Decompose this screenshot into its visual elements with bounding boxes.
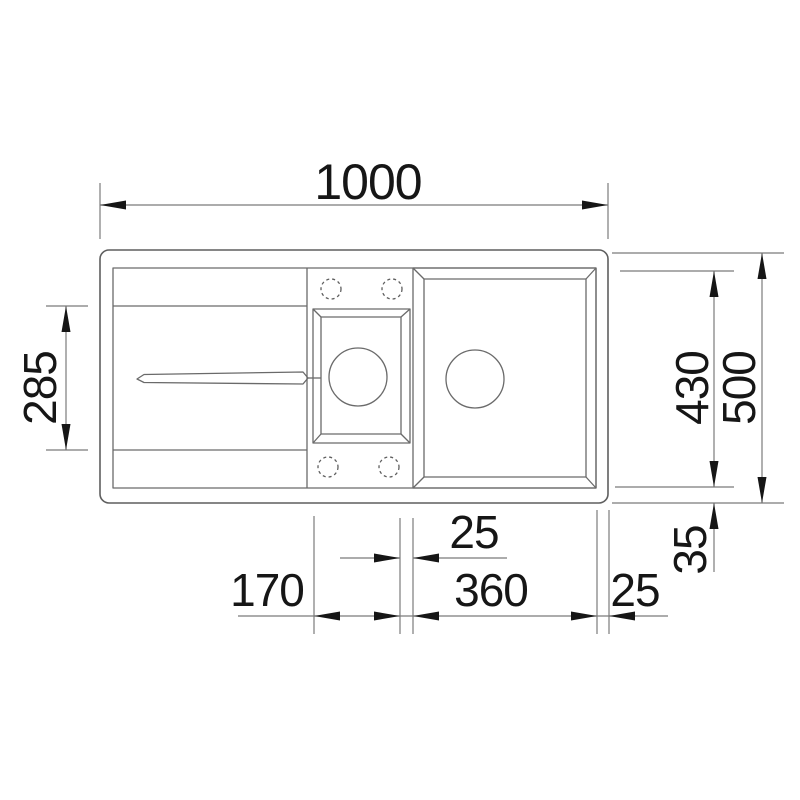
tap-hole-bottom-left <box>318 457 338 477</box>
arrowhead-down <box>758 477 767 503</box>
small-bowl-bevel-bl <box>313 434 321 443</box>
small-bowl-bevel-tr <box>401 309 410 317</box>
dim-label-main-bowl-width: 360 <box>454 564 528 616</box>
small-bowl-bevel-tl <box>313 309 321 317</box>
sink-dimension-diagram: 1000 285 430 500 35 <box>0 0 800 800</box>
main-bowl <box>413 268 596 488</box>
tap-hole-bottom-right <box>379 457 399 477</box>
arrowhead-left <box>413 612 439 621</box>
dim-drainboard-depth: 285 <box>14 306 88 450</box>
small-bowl-inner <box>321 317 401 434</box>
sink-inner-rim <box>113 268 596 488</box>
dim-label-bowl-depth: 430 <box>666 351 718 425</box>
arrowhead-down <box>710 461 719 487</box>
dim-label-bottom-rim-offset: 35 <box>664 525 716 574</box>
dim-label-right-rim-margin: 25 <box>610 564 659 616</box>
main-bowl-bevel-tl <box>413 268 424 279</box>
small-bowl <box>313 309 410 443</box>
main-bowl-bevel-tr <box>586 268 596 279</box>
dim-label-drainboard-depth: 285 <box>14 351 66 425</box>
dim-bowl-divider-gap: 25 <box>340 506 507 563</box>
small-bowl-bevel-br <box>401 434 410 443</box>
arrowhead-left <box>100 201 126 210</box>
arrowhead-right <box>571 612 597 621</box>
arrowhead-up <box>62 306 71 332</box>
dim-label-small-bowl-width: 170 <box>230 564 304 616</box>
tap-hole-top-right <box>382 279 402 299</box>
dim-label-overall-depth: 500 <box>713 351 765 425</box>
arrowhead-left <box>314 612 340 621</box>
main-bowl-inner <box>424 279 586 477</box>
technical-drawing-canvas: 1000 285 430 500 35 <box>0 0 800 800</box>
small-bowl-outer <box>313 309 410 443</box>
small-bowl-drain <box>329 348 387 406</box>
arrowhead-right <box>374 612 400 621</box>
dim-label-overall-width: 1000 <box>314 154 421 210</box>
arrowhead-down <box>62 424 71 450</box>
dim-overall-width: 1000 <box>100 154 608 239</box>
main-bowl-bevel-br <box>586 477 596 488</box>
arrowhead-up <box>710 503 719 529</box>
dim-bottom-row: 170 360 25 <box>230 564 668 621</box>
arrowhead-right <box>374 554 400 563</box>
drainboard-groove <box>137 372 308 384</box>
arrowhead-up <box>710 271 719 297</box>
dim-label-bowl-divider-gap: 25 <box>449 506 498 558</box>
sink-outer-outline <box>100 250 608 503</box>
arrowhead-right <box>582 201 608 210</box>
tap-hole-top-left <box>321 279 341 299</box>
main-bowl-drain <box>446 350 504 408</box>
arrowhead-left <box>413 554 439 563</box>
main-bowl-bevel-bl <box>413 477 424 488</box>
sink-body <box>100 250 608 503</box>
arrowhead-up <box>758 253 767 279</box>
dim-bottom-rim-offset: 35 <box>664 503 719 575</box>
